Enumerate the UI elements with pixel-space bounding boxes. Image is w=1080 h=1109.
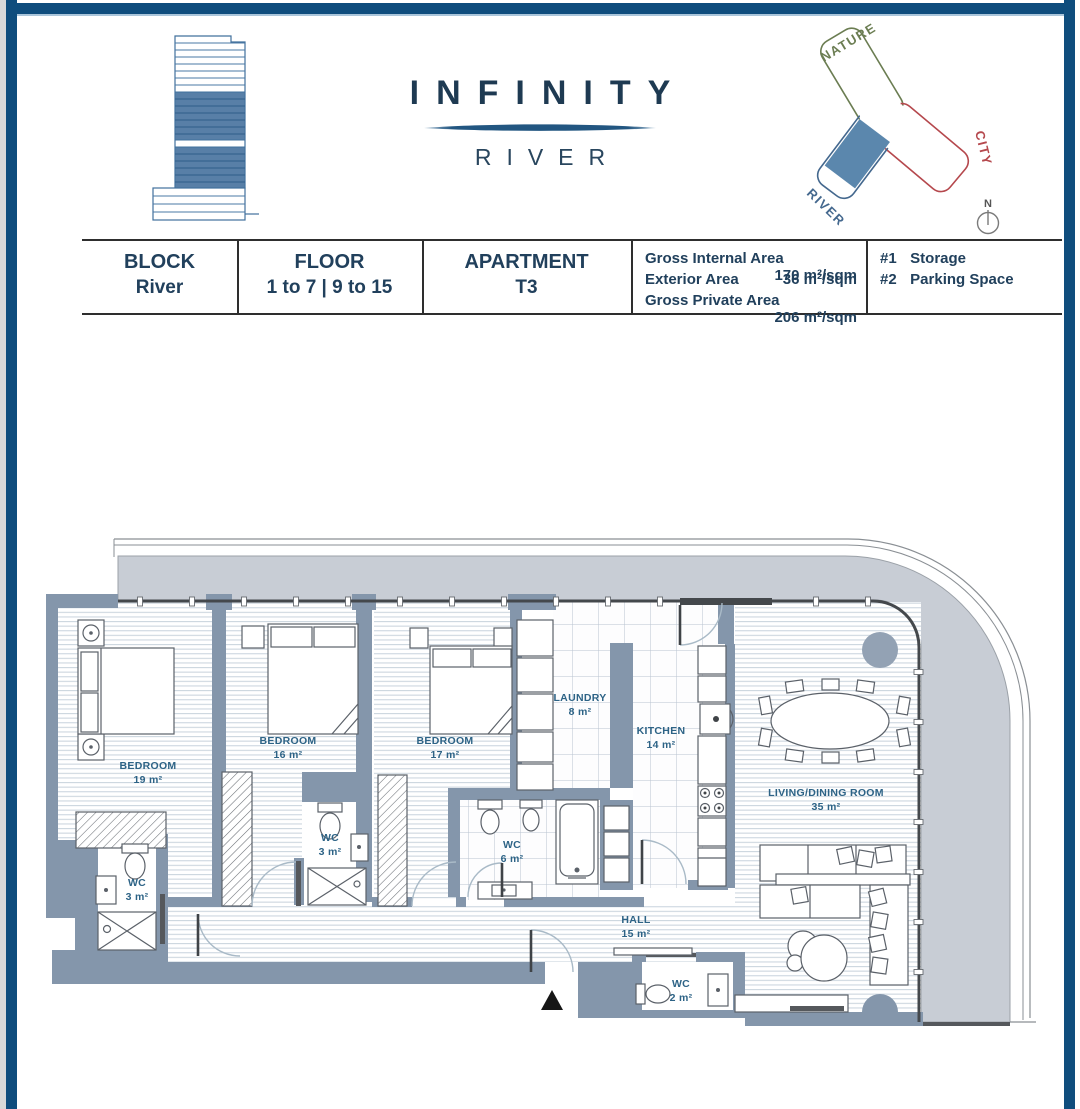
door-leaf — [160, 894, 165, 944]
room-area-hall: 15 m² — [622, 928, 651, 940]
wardrobe-icon — [76, 812, 166, 848]
room-label-bedroom-16: BEDROOM — [260, 735, 317, 747]
room-label-wc-3-right: WC — [321, 832, 339, 844]
city-label: CITY — [972, 129, 995, 167]
table-divider — [631, 239, 633, 315]
area-row: Exterior Area 36 m²/sqm — [645, 271, 857, 291]
console-icon — [614, 948, 692, 955]
room-area-wc-3-right: 3 m² — [319, 846, 342, 858]
laundry-cabinets — [517, 620, 553, 790]
block-cell: BLOCK River — [82, 249, 237, 301]
room-label-living-dining: LIVING/DINING ROOM — [768, 787, 884, 799]
floor-plan: BEDROOM 19 m² BEDROOM 16 m² BEDROOM 17 m… — [0, 530, 1080, 1109]
building-icon — [145, 28, 263, 228]
site-plan-icon: NATURE CITY RIVER N — [798, 12, 1013, 240]
room-area-wc-6: 6 m² — [501, 853, 524, 865]
extra-row: #2 Parking Space — [880, 271, 1060, 291]
extra-value: Parking Space — [910, 271, 1013, 288]
room-area-bedroom-17: 17 m² — [431, 749, 460, 761]
column — [862, 632, 898, 668]
toilet-icon — [636, 984, 670, 1004]
block-label: BLOCK — [82, 249, 237, 275]
room-area-bedroom-16: 16 m² — [274, 749, 303, 761]
shelf-icon — [604, 806, 629, 882]
apartment-label: APARTMENT — [422, 249, 631, 275]
sink-icon — [708, 974, 728, 1006]
table-divider — [866, 239, 868, 315]
door-leaf — [296, 861, 301, 906]
room-label-wc-2: WC — [672, 978, 690, 990]
wardrobe-icon — [222, 772, 252, 906]
brand-block: INFINITY RIVER — [330, 74, 750, 171]
room-area-living-dining: 35 m² — [812, 801, 841, 813]
area-value: 206 m²/sqm — [774, 309, 857, 326]
extra-number: #2 — [880, 271, 906, 288]
apartment-cell: APARTMENT T3 — [422, 249, 631, 301]
brand-subtitle: RIVER — [330, 144, 765, 171]
extra-number: #1 — [880, 250, 906, 267]
shower-icon — [98, 912, 156, 950]
room-area-kitchen: 14 m² — [647, 739, 676, 751]
area-value: 36 m²/sqm — [783, 271, 857, 288]
room-label-laundry: LAUNDRY — [553, 692, 606, 704]
compass-icon: N — [978, 198, 999, 234]
floor-cell: FLOOR 1 to 7 | 9 to 15 — [237, 249, 422, 301]
floor-value: 1 to 7 | 9 to 15 — [237, 275, 422, 301]
extra-row: #1 Storage — [880, 250, 1060, 270]
area-label: Gross Internal Area — [645, 250, 784, 267]
brochure-page: INFINITY RIVER NATURE CITY RIVER — [0, 0, 1080, 1109]
shower-icon — [308, 868, 366, 905]
sink-icon — [351, 834, 368, 861]
room-label-wc-6: WC — [503, 839, 521, 851]
room-area-wc-3-left: 3 m² — [126, 891, 149, 903]
room-label-bedroom-17: BEDROOM — [417, 735, 474, 747]
sideboard-icon — [735, 995, 848, 1012]
brand-swoosh-icon — [424, 122, 656, 134]
brand-title: INFINITY — [330, 74, 767, 113]
apartment-value: T3 — [422, 275, 631, 301]
compass-north-label: N — [984, 198, 992, 210]
extra-value: Storage — [910, 250, 966, 267]
entrance-arrow-icon — [541, 990, 563, 1010]
area-label: Exterior Area — [645, 271, 739, 288]
floor-label: FLOOR — [237, 249, 422, 275]
room-label-hall: HALL — [621, 914, 650, 926]
area-row: Gross Internal Area 170 m²/sqm — [645, 250, 857, 270]
room-area-wc-2: 2 m² — [670, 992, 693, 1004]
room-label-bedroom-19: BEDROOM — [120, 760, 177, 772]
table-rule-top — [82, 239, 1062, 241]
area-row: Gross Private Area 206 m²/sqm — [645, 292, 857, 312]
wardrobe-icon — [378, 775, 407, 906]
block-value: River — [82, 275, 237, 301]
sink-icon — [96, 876, 116, 904]
area-label: Gross Private Area — [645, 292, 780, 309]
room-label-kitchen: KITCHEN — [637, 725, 686, 737]
room-area-laundry: 8 m² — [569, 706, 592, 718]
bathtub-icon — [556, 800, 598, 884]
table-rule-bottom — [82, 313, 1062, 315]
vanity-icon — [478, 882, 532, 899]
room-area-bedroom-19: 19 m² — [134, 774, 163, 786]
room-label-wc-3-left: WC — [128, 877, 146, 889]
